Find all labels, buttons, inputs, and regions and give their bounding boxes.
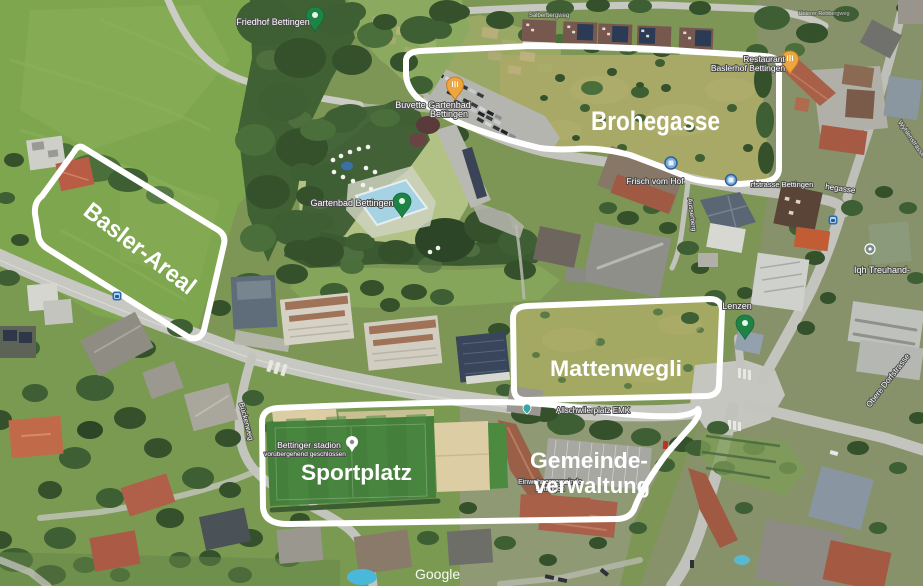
svg-text:Google: Google xyxy=(415,566,460,582)
svg-text:Iqh Treuhand-: Iqh Treuhand- xyxy=(854,265,910,275)
svg-text:Bettinger stadion: Bettinger stadion xyxy=(277,440,341,450)
svg-text:Friedhof Bettingen: Friedhof Bettingen xyxy=(236,17,310,27)
svg-text:Sportplatz: Sportplatz xyxy=(301,460,412,485)
svg-text:Baslerhof Bettingen: Baslerhof Bettingen xyxy=(711,63,785,73)
svg-text:Frisch vom Hof: Frisch vom Hof xyxy=(626,176,684,186)
svg-text:Bettingen: Bettingen xyxy=(430,109,468,119)
svg-text:Allschwilerplatz EMK: Allschwilerplatz EMK xyxy=(556,406,631,415)
svg-text:Gartenbad Bettingen: Gartenbad Bettingen xyxy=(310,198,393,208)
svg-text:verwaltung: verwaltung xyxy=(534,473,650,498)
svg-text:Mattenwegli: Mattenwegli xyxy=(550,356,682,381)
svg-text:Brohegasse: Brohegasse xyxy=(591,106,720,136)
svg-text:vorübergehend geschlossen: vorübergehend geschlossen xyxy=(264,451,346,458)
svg-text:Unterer Rebbergweg: Unterer Rebbergweg xyxy=(798,11,849,17)
svg-text:rfstrasse Bettingen: rfstrasse Bettingen xyxy=(751,180,814,189)
svg-text:Lenzen: Lenzen xyxy=(722,301,752,311)
svg-text:Salberbergweg: Salberbergweg xyxy=(529,13,569,19)
svg-text:Gemeinde-: Gemeinde- xyxy=(530,448,648,473)
